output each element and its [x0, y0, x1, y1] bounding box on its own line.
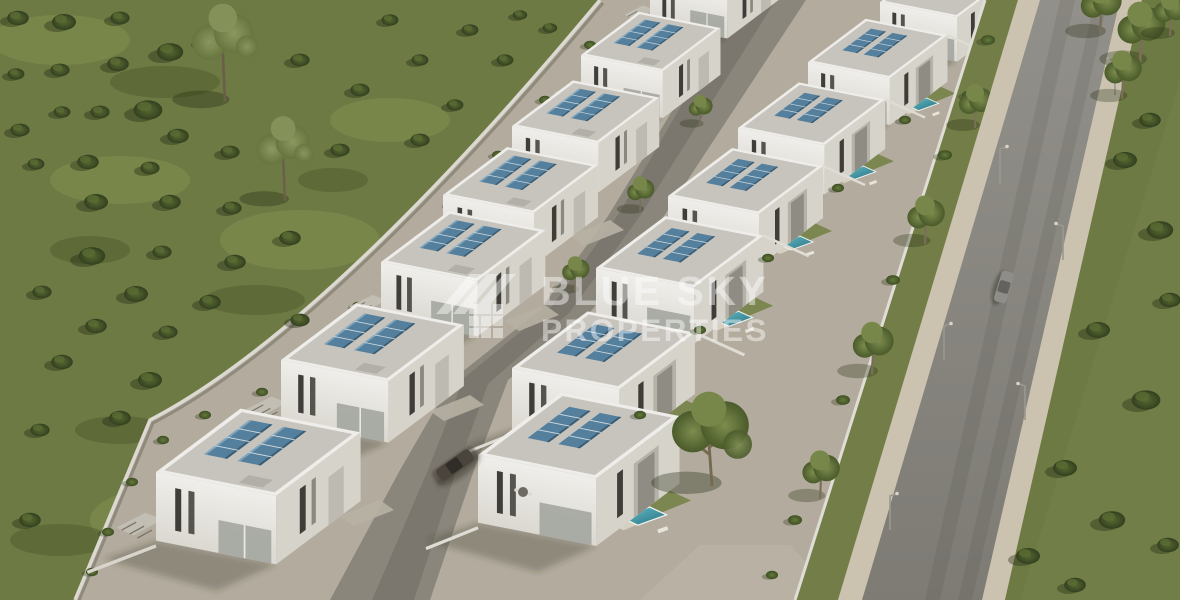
render-canvas: BLUE SKY PROPERTIES — [0, 0, 1180, 600]
watermark: BLUE SKY PROPERTIES — [436, 268, 769, 348]
watermark-line2: PROPERTIES — [541, 312, 769, 348]
watermark-line1: BLUE SKY — [541, 268, 768, 314]
aerial-render: BLUE SKY PROPERTIES — [0, 0, 1180, 600]
